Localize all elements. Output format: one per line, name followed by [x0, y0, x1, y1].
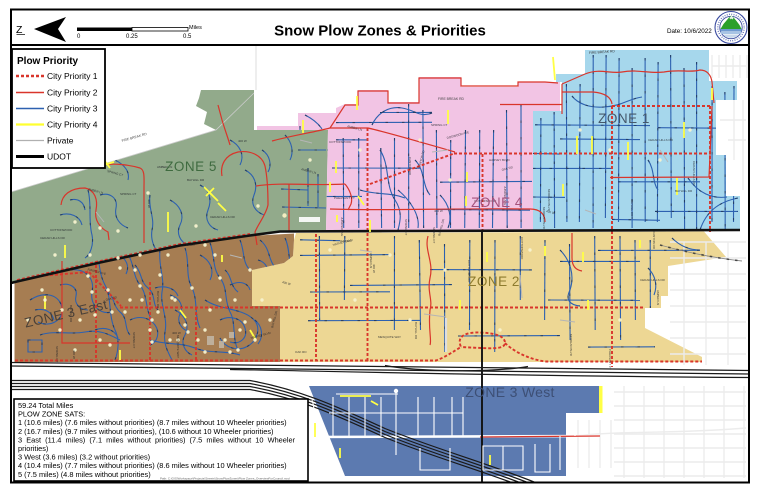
svg-text:MORGAN BLVD: MORGAN BLVD	[569, 334, 573, 357]
svg-text:BAYHILL DR: BAYHILL DR	[414, 322, 418, 340]
svg-text:City Priority 1: City Priority 1	[47, 71, 98, 81]
svg-text:CANYON RD: CANYON RD	[652, 231, 656, 250]
svg-text:MESQUITE WAY: MESQUITE WAY	[378, 335, 401, 339]
svg-text:ZONE 4: ZONE 4	[471, 195, 523, 210]
svg-text:COTTONWOOD: COTTONWOOD	[520, 237, 524, 260]
svg-text:CEDAR HILLS DR: CEDAR HILLS DR	[210, 215, 236, 219]
svg-text:CEDAR HILLS DR: CEDAR HILLS DR	[40, 236, 66, 240]
svg-text:CEDAR HILLS DR: CEDAR HILLS DR	[648, 138, 674, 142]
svg-text:FIRE BREAK RD: FIRE BREAK RD	[438, 97, 465, 101]
svg-text:ZONE 3 West: ZONE 3 West	[465, 384, 554, 400]
svg-text:OAK RD: OAK RD	[183, 243, 195, 247]
svg-text:BAYHILL DR: BAYHILL DR	[187, 178, 205, 182]
svg-text:Path: C:\GIS\Workspace\Project: Path: C:\GIS\Workspace\Projects\Streets\…	[160, 477, 290, 481]
svg-text:PHEASANT PT: PHEASANT PT	[608, 349, 612, 370]
svg-text:PHEASANT PT: PHEASANT PT	[334, 196, 355, 200]
svg-text:CANYON RD: CANYON RD	[408, 157, 412, 176]
svg-text:City Priority 3: City Priority 3	[47, 104, 98, 114]
svg-text:MORGAN BLVD: MORGAN BLVD	[547, 189, 551, 212]
svg-text:AMBER LN: AMBER LN	[656, 290, 660, 305]
svg-text:COTTONWOOD: COTTONWOOD	[329, 140, 352, 144]
svg-text:400 W: 400 W	[147, 199, 151, 208]
svg-text:Plow Priority: Plow Priority	[17, 56, 79, 67]
svg-text:UDOT: UDOT	[47, 152, 71, 162]
svg-text:Snow Plow Zones & Priorities: Snow Plow Zones & Priorities	[274, 23, 486, 40]
svg-text:400 W: 400 W	[238, 139, 247, 143]
svg-text:BAYHILL DR: BAYHILL DR	[156, 291, 160, 309]
svg-text:FIRE BREAK RD: FIRE BREAK RD	[121, 132, 148, 143]
svg-text:Private: Private	[47, 136, 74, 146]
svg-text:SPRING CT: SPRING CT	[120, 192, 137, 196]
svg-text:5 (7.5 miles) (4.8 miles witho: 5 (7.5 miles) (4.8 miles without priorit…	[18, 470, 151, 479]
svg-text:ZONE 1: ZONE 1	[598, 111, 650, 126]
svg-text:COTTONWOOD: COTTONWOOD	[50, 228, 73, 232]
svg-text:SPRING CT: SPRING CT	[132, 332, 136, 349]
svg-text:0.5: 0.5	[183, 34, 192, 40]
svg-text:OAK RD: OAK RD	[340, 239, 352, 243]
svg-text:City Priority 4: City Priority 4	[47, 120, 98, 130]
svg-text:SPRING CT: SPRING CT	[431, 123, 448, 127]
svg-text:SPRING CT: SPRING CT	[404, 219, 408, 236]
svg-text:ZONE 5: ZONE 5	[165, 159, 217, 174]
svg-text:BAYHILL DR: BAYHILL DR	[675, 189, 693, 193]
svg-text:SPRING CT: SPRING CT	[432, 227, 436, 244]
svg-text:400 W: 400 W	[372, 264, 376, 273]
svg-text:0.25: 0.25	[126, 34, 138, 40]
svg-text:MORGAN BLVD: MORGAN BLVD	[542, 207, 546, 230]
svg-text:Date: 10/6/2022: Date: 10/6/2022	[667, 28, 712, 35]
svg-text:JUNIPER AVE: JUNIPER AVE	[340, 217, 344, 236]
svg-text:400 W: 400 W	[72, 350, 76, 359]
svg-text:400 W: 400 W	[434, 209, 443, 213]
svg-text:City Priority 2: City Priority 2	[47, 88, 98, 98]
svg-text:3 East (11.4 miles) (7.1: 3 East (11.4 miles) (7.1 miles without p…	[18, 435, 296, 444]
svg-text:CEDAR HILLS DR: CEDAR HILLS DR	[640, 278, 666, 282]
svg-text:MESQUITE WAY: MESQUITE WAY	[176, 335, 180, 358]
svg-text:OAK RD: OAK RD	[295, 350, 307, 354]
svg-text:Miles: Miles	[189, 25, 202, 31]
svg-text:ZONE 2: ZONE 2	[468, 274, 520, 289]
svg-text:BAYHILL DR: BAYHILL DR	[630, 199, 634, 217]
svg-text:CEDAR HILLS DR: CEDAR HILLS DR	[692, 161, 696, 187]
svg-text:SPRING CT: SPRING CT	[55, 346, 59, 363]
svg-text:HARVEY BLVD: HARVEY BLVD	[489, 158, 511, 162]
